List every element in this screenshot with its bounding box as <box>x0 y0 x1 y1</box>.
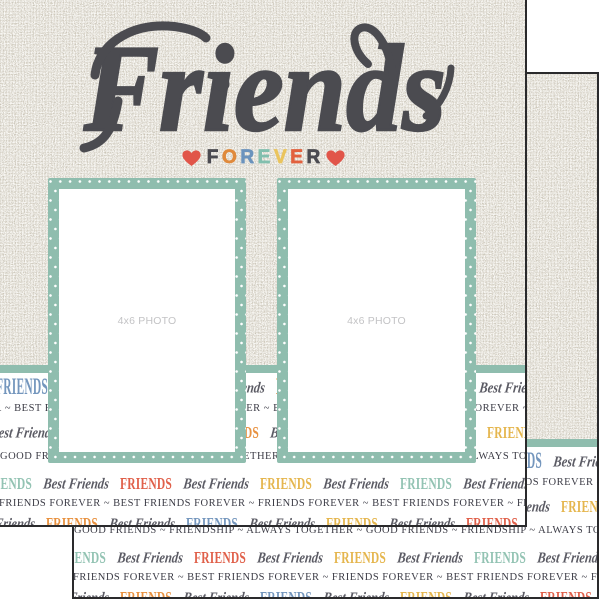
svg-text:Friends: Friends <box>83 20 446 157</box>
